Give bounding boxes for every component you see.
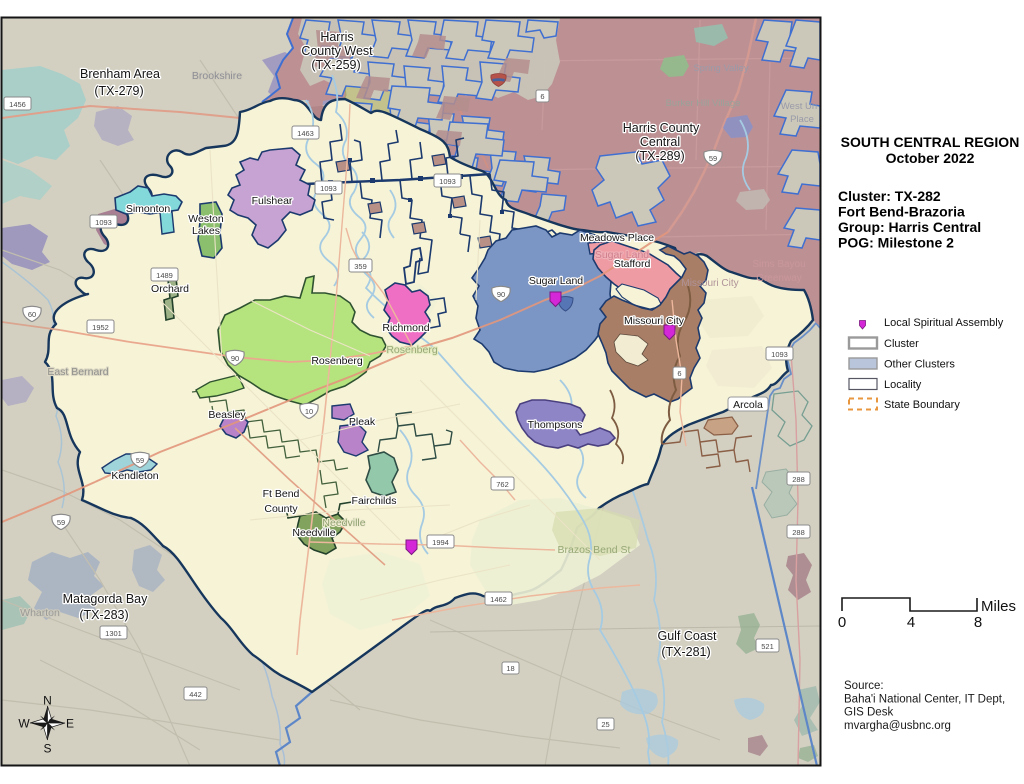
svg-text:Spring Valley: Spring Valley xyxy=(693,63,749,74)
svg-text:Rosenberg: Rosenberg xyxy=(386,344,438,356)
svg-text:S: S xyxy=(43,742,51,756)
svg-text:mvargha@usbnc.org: mvargha@usbnc.org xyxy=(844,720,951,732)
svg-text:Simonton: Simonton xyxy=(126,203,171,215)
svg-text:1093: 1093 xyxy=(771,350,788,359)
svg-text:Meadows Place: Meadows Place xyxy=(580,232,654,244)
svg-text:(TX-279): (TX-279) xyxy=(94,84,143,98)
svg-text:Fulshear: Fulshear xyxy=(252,195,293,207)
svg-text:(TX-259): (TX-259) xyxy=(311,58,360,72)
svg-text:59: 59 xyxy=(136,456,144,465)
svg-text:Beasley: Beasley xyxy=(208,409,246,421)
svg-text:359: 359 xyxy=(354,262,367,271)
svg-text:8: 8 xyxy=(974,614,982,631)
svg-text:59: 59 xyxy=(57,518,65,527)
svg-text:Group: Harris Central: Group: Harris Central xyxy=(838,219,981,235)
svg-text:Brazos Bend St: Brazos Bend St xyxy=(558,544,631,556)
svg-text:Lakes: Lakes xyxy=(192,225,220,237)
svg-text:Miles: Miles xyxy=(981,598,1016,615)
svg-text:County West: County West xyxy=(301,44,373,58)
svg-text:1093: 1093 xyxy=(95,218,112,227)
svg-text:Cluster: Cluster xyxy=(884,338,919,350)
svg-text:Stafford: Stafford xyxy=(614,258,651,270)
svg-text:Ft Bend: Ft Bend xyxy=(263,488,300,500)
svg-text:Harris: Harris xyxy=(320,30,353,44)
svg-text:Weston: Weston xyxy=(188,213,224,225)
svg-text:Fairchilds: Fairchilds xyxy=(352,495,397,507)
svg-text:(TX-281): (TX-281) xyxy=(661,645,710,659)
svg-text:1093: 1093 xyxy=(320,184,337,193)
svg-text:West Un: West Un xyxy=(781,101,817,112)
svg-text:Source:: Source: xyxy=(844,680,884,692)
svg-text:59: 59 xyxy=(709,154,717,163)
svg-text:Thompsons: Thompsons xyxy=(528,419,583,431)
svg-text:288: 288 xyxy=(792,528,805,537)
svg-text:1456: 1456 xyxy=(9,100,26,109)
svg-text:90: 90 xyxy=(231,354,239,363)
svg-text:State Boundary: State Boundary xyxy=(884,399,960,411)
svg-text:0: 0 xyxy=(838,614,846,631)
svg-text:1994: 1994 xyxy=(432,538,449,547)
svg-text:Baha'i National Center, IT Dep: Baha'i National Center, IT Dept, xyxy=(844,694,1005,706)
svg-text:Sims Bayou: Sims Bayou xyxy=(752,259,805,270)
svg-text:521: 521 xyxy=(761,642,774,651)
svg-text:6: 6 xyxy=(677,369,681,378)
svg-text:East Bernard: East Bernard xyxy=(47,366,108,378)
svg-text:Richmond: Richmond xyxy=(382,322,429,334)
svg-text:1093: 1093 xyxy=(439,177,456,186)
svg-text:W: W xyxy=(18,717,30,731)
svg-text:10: 10 xyxy=(305,407,313,416)
svg-text:1952: 1952 xyxy=(92,323,109,332)
svg-text:Arcola: Arcola xyxy=(733,399,763,411)
svg-text:(TX-289): (TX-289) xyxy=(635,149,684,163)
svg-text:GIS Desk: GIS Desk xyxy=(844,707,893,719)
svg-text:Greenway: Greenway xyxy=(756,273,802,284)
svg-text:442: 442 xyxy=(189,690,202,699)
svg-text:1489: 1489 xyxy=(156,271,173,280)
svg-text:(TX-283): (TX-283) xyxy=(79,608,128,622)
svg-text:90: 90 xyxy=(497,290,505,299)
svg-text:Pleak: Pleak xyxy=(349,416,376,428)
svg-text:1301: 1301 xyxy=(105,629,122,638)
svg-text:October 2022: October 2022 xyxy=(886,150,975,166)
svg-text:Missouri City: Missouri City xyxy=(681,278,738,289)
svg-text:Matagorda Bay: Matagorda Bay xyxy=(63,592,149,606)
svg-text:E: E xyxy=(66,717,74,731)
svg-text:Missouri City: Missouri City xyxy=(624,315,685,327)
svg-text:1463: 1463 xyxy=(297,129,314,138)
svg-text:Brenham Area: Brenham Area xyxy=(80,67,160,81)
svg-text:Harris County: Harris County xyxy=(623,121,700,135)
svg-text:SOUTH CENTRAL REGION: SOUTH CENTRAL REGION xyxy=(841,134,1020,150)
svg-text:Central: Central xyxy=(640,135,680,149)
svg-text:Rosenberg: Rosenberg xyxy=(311,355,363,367)
svg-text:Locality: Locality xyxy=(884,379,922,391)
svg-text:Kendleton: Kendleton xyxy=(111,470,158,482)
svg-text:1462: 1462 xyxy=(490,595,507,604)
svg-text:60: 60 xyxy=(28,310,36,319)
svg-text:Cluster: TX-282: Cluster: TX-282 xyxy=(838,188,941,204)
svg-text:N: N xyxy=(43,694,52,708)
svg-text:25: 25 xyxy=(601,720,609,729)
svg-text:Fort Bend-Brazoria: Fort Bend-Brazoria xyxy=(838,204,965,220)
svg-text:Gulf Coast: Gulf Coast xyxy=(657,629,717,643)
svg-text:Brookshire: Brookshire xyxy=(192,70,242,82)
svg-text:Sugar Land: Sugar Land xyxy=(529,275,583,287)
svg-text:6: 6 xyxy=(540,92,544,101)
svg-text:Other Clusters: Other Clusters xyxy=(884,359,955,371)
svg-text:Place: Place xyxy=(790,114,814,125)
svg-text:Orchard: Orchard xyxy=(151,283,189,295)
svg-text:Wharton: Wharton xyxy=(20,607,60,619)
svg-text:18: 18 xyxy=(506,664,514,673)
svg-text:Local Spiritual Assembly: Local Spiritual Assembly xyxy=(884,317,1004,329)
svg-text:Burker Hill Village: Burker Hill Village xyxy=(666,98,741,109)
svg-text:4: 4 xyxy=(907,614,915,631)
svg-text:762: 762 xyxy=(496,480,509,489)
svg-text:County: County xyxy=(264,503,298,515)
svg-text:Needville: Needville xyxy=(292,527,335,539)
svg-text:288: 288 xyxy=(792,475,805,484)
svg-text:POG: Milestone 2: POG: Milestone 2 xyxy=(838,235,954,251)
